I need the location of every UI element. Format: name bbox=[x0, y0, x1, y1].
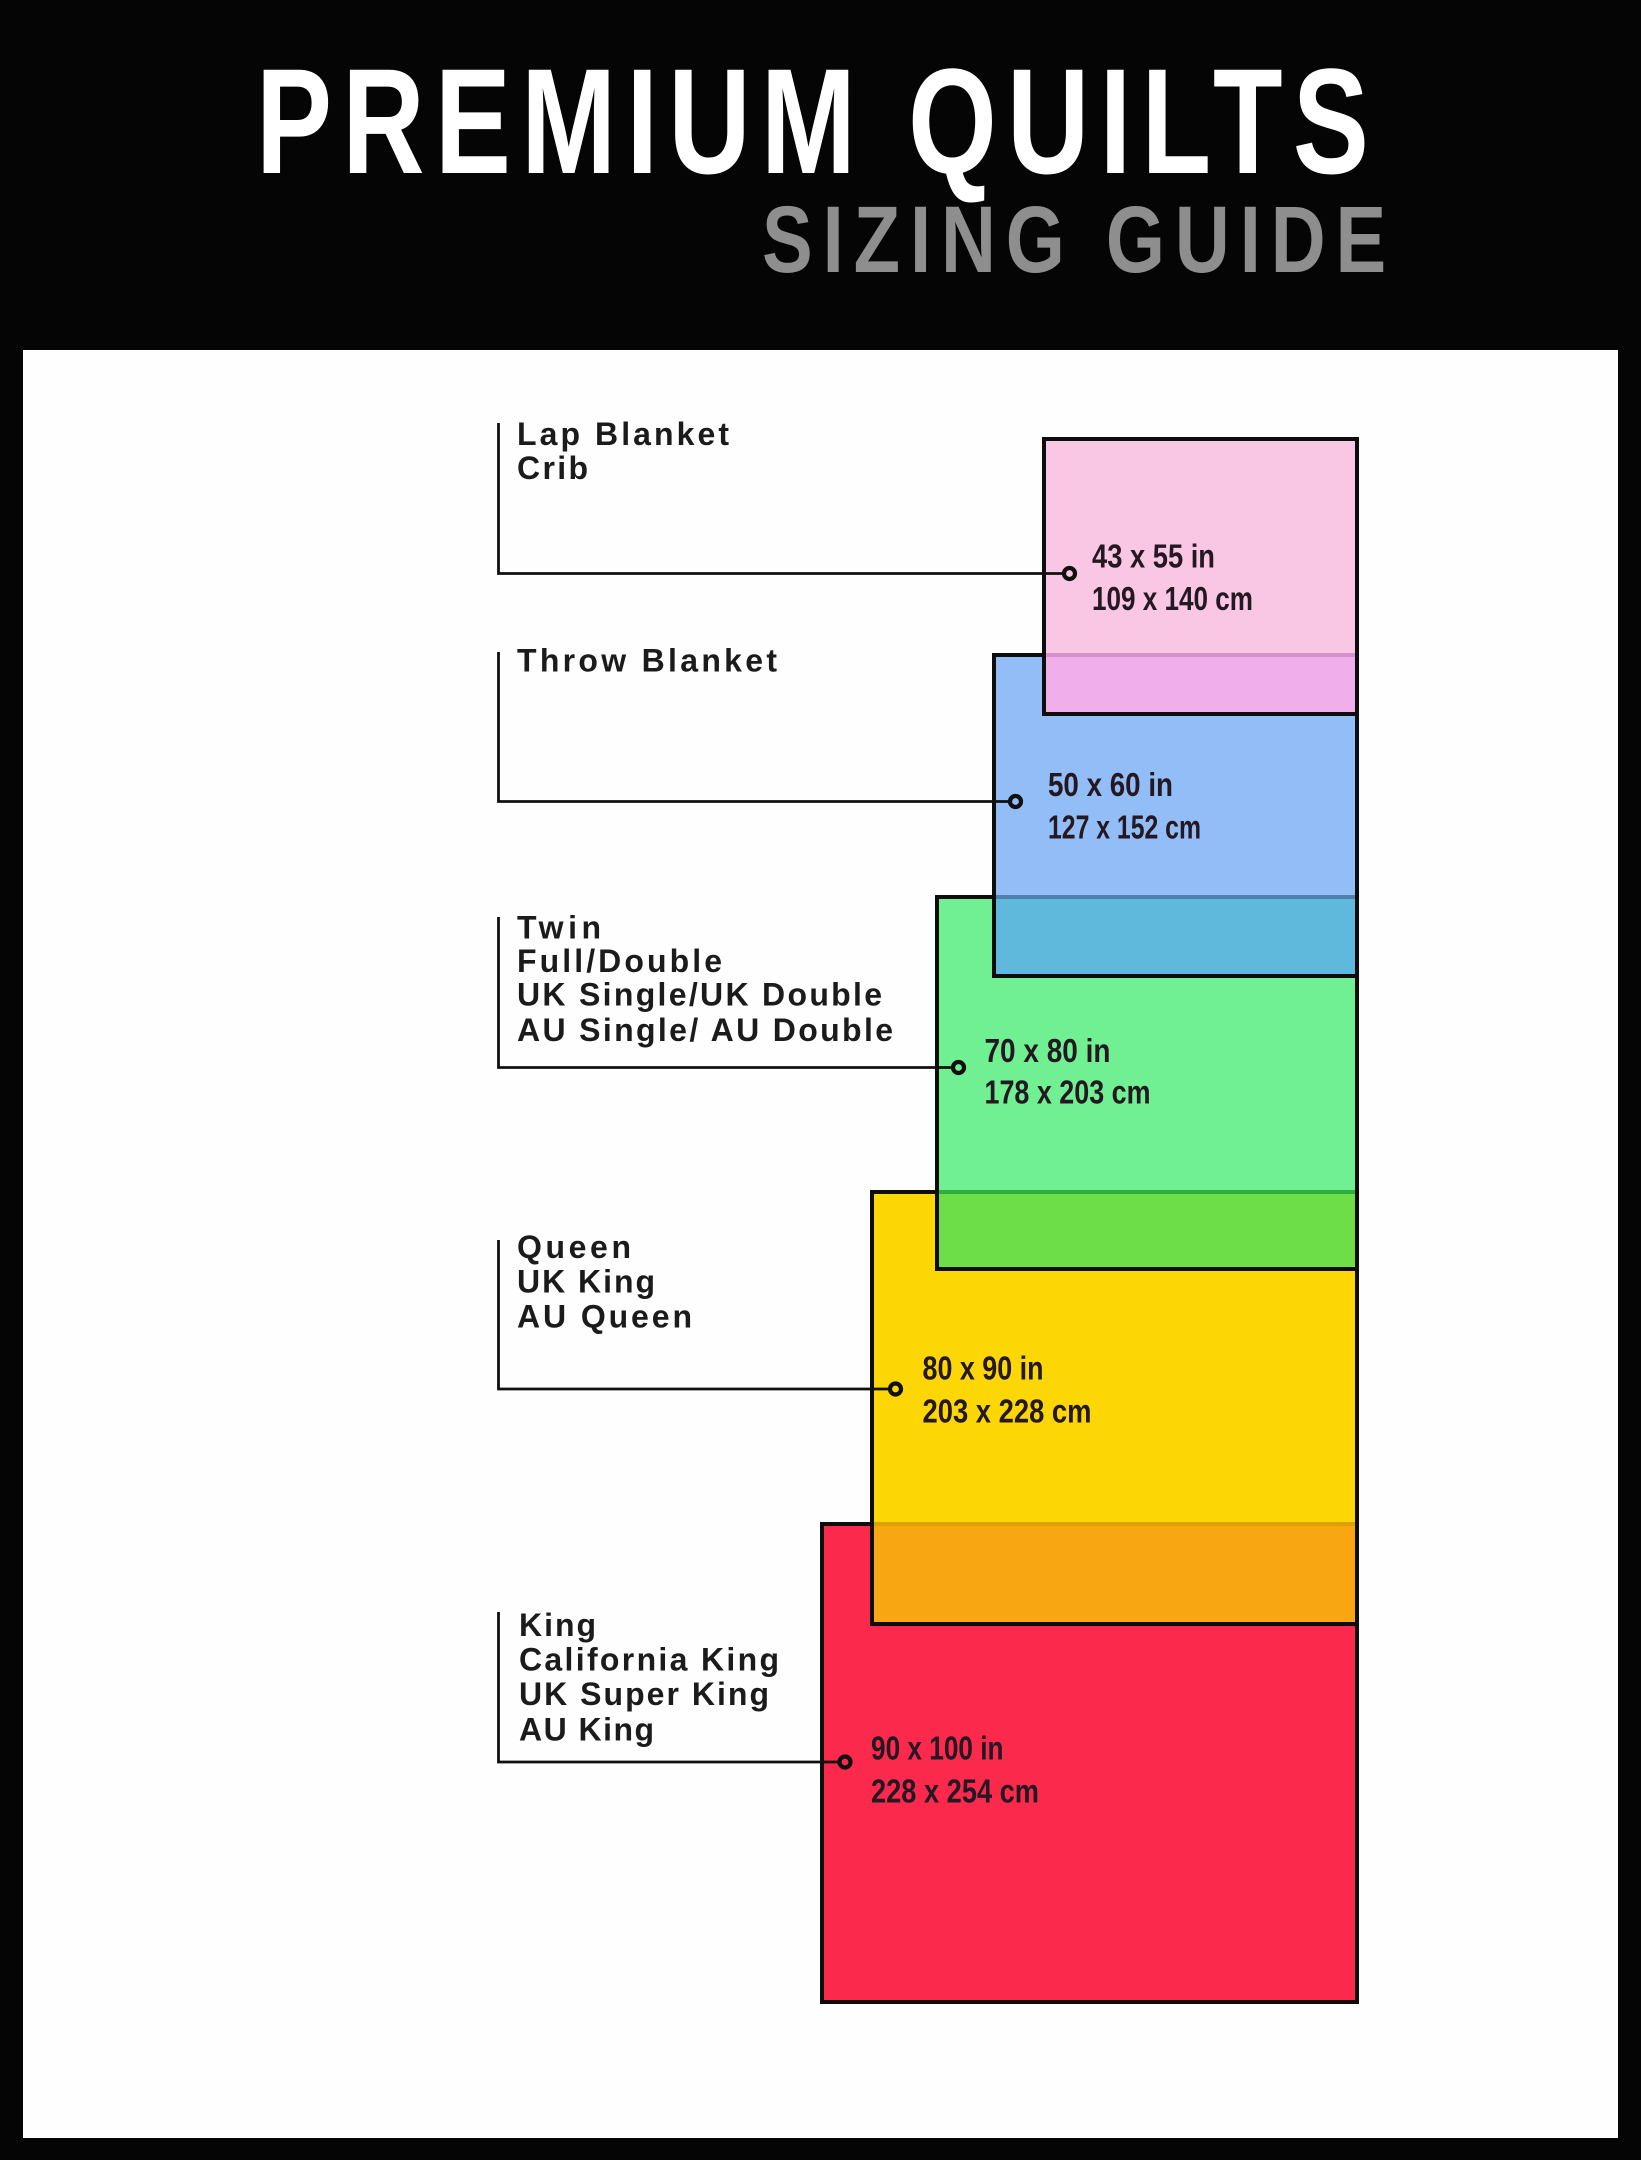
svg-text:Full/Double: Full/Double bbox=[517, 943, 722, 979]
svg-text:Twin: Twin bbox=[517, 910, 601, 946]
svg-text:AU Queen: AU Queen bbox=[517, 1299, 692, 1335]
svg-text:California King: California King bbox=[519, 1642, 779, 1678]
svg-text:UK Super King: UK Super King bbox=[519, 1676, 769, 1712]
svg-text:228 x 254 cm: 228 x 254 cm bbox=[871, 1773, 1039, 1810]
svg-text:SIZING GUIDE: SIZING GUIDE bbox=[762, 187, 1396, 293]
svg-text:178 x 203 cm: 178 x 203 cm bbox=[985, 1074, 1151, 1111]
svg-text:Queen: Queen bbox=[517, 1229, 631, 1265]
svg-text:43 x 55 in: 43 x 55 in bbox=[1092, 538, 1215, 575]
svg-text:Lap Blanket: Lap Blanket bbox=[517, 416, 729, 452]
svg-text:90 x 100 in: 90 x 100 in bbox=[871, 1730, 1004, 1767]
svg-text:King: King bbox=[519, 1607, 596, 1643]
svg-text:80 x 90 in: 80 x 90 in bbox=[923, 1350, 1044, 1387]
svg-text:UK Single/UK Double: UK Single/UK Double bbox=[517, 977, 882, 1013]
svg-text:Throw Blanket: Throw Blanket bbox=[517, 643, 777, 679]
svg-text:70 x 80 in: 70 x 80 in bbox=[985, 1032, 1111, 1069]
svg-text:203 x 228 cm: 203 x 228 cm bbox=[923, 1393, 1092, 1430]
svg-text:AU King: AU King bbox=[519, 1712, 654, 1748]
svg-text:109 x 140 cm: 109 x 140 cm bbox=[1092, 580, 1253, 617]
svg-text:50 x 60 in: 50 x 60 in bbox=[1048, 766, 1173, 803]
svg-text:127 x 152 cm: 127 x 152 cm bbox=[1048, 809, 1201, 846]
svg-text:PREMIUM QUILTS: PREMIUM QUILTS bbox=[256, 38, 1379, 206]
svg-text:AU Single/ AU Double: AU Single/ AU Double bbox=[517, 1012, 893, 1048]
svg-text:Crib: Crib bbox=[517, 450, 588, 486]
